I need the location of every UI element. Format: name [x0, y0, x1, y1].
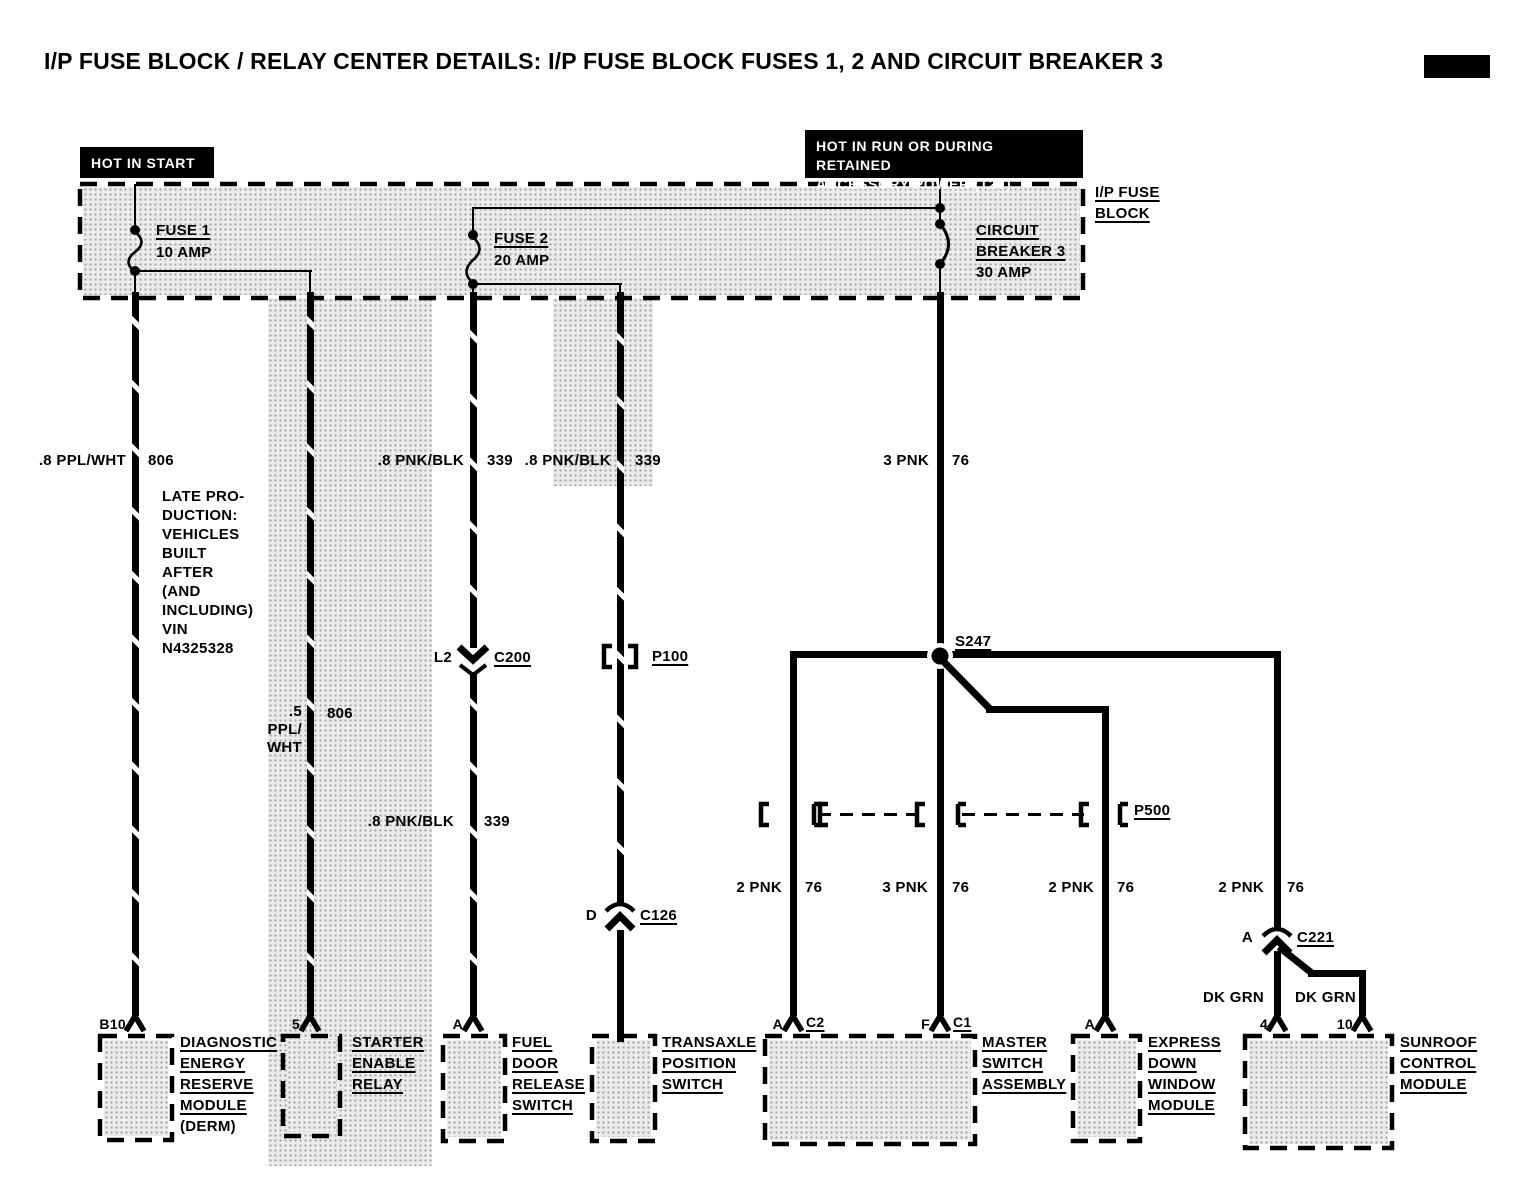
fuse2-symbol — [467, 230, 480, 289]
c126-pin-label: D — [586, 907, 597, 925]
breaker-rating: 30 AMP — [976, 264, 1031, 282]
transaxle-label: TRANSAXLE POSITION SWITCH — [662, 1032, 756, 1095]
fuse2-name: FUSE 2 — [494, 230, 548, 248]
wire4-circuit-label: 339 — [635, 452, 661, 470]
sunroof-wire2-color-label: DK GRN — [1295, 989, 1356, 1007]
hot-in-start-label: HOT IN START — [91, 155, 195, 171]
late-production-note: LATE PRO- DUCTION: VEHICLES BUILT AFTER … — [162, 487, 253, 658]
branch2-circuit-label: 76 — [952, 879, 969, 897]
p500-label: P500 — [1134, 802, 1170, 820]
hot-in-run-label-line2: ACCESSORY POWER (T2T) — [816, 175, 1072, 194]
pin-fork-terminals — [126, 1010, 1371, 1031]
sunroof-pin10-label: 10 — [1337, 1015, 1353, 1033]
breaker-name-line2: BREAKER 3 — [976, 243, 1065, 261]
transaxle-box — [592, 1036, 655, 1141]
p100-grommet-symbol — [604, 646, 636, 667]
master-conn-c2-label: C2 — [806, 1013, 825, 1031]
wire3b-color-label: .8 PNK/BLK — [368, 813, 454, 831]
starter-relay-label: STARTER ENABLE RELAY — [352, 1032, 424, 1095]
fuse2-rating: 20 AMP — [494, 252, 549, 270]
master-conn-c1-label: C1 — [953, 1013, 972, 1031]
master-switch-label: MASTER SWITCH ASSEMBLY — [982, 1032, 1066, 1095]
master-switch-box — [765, 1036, 975, 1144]
sunroof-pin4-label: 4 — [1260, 1015, 1268, 1033]
circuit-breaker3-symbol — [935, 203, 949, 269]
c200-connector-symbol — [459, 647, 487, 675]
wire5-circuit-label: 76 — [952, 452, 969, 470]
splice-diagonal-branches — [943, 661, 1313, 974]
fuse1-rating: 10 AMP — [156, 244, 211, 262]
p100-label: P100 — [652, 648, 688, 666]
master-pin-a-label: A — [773, 1015, 783, 1033]
branch4-color-label: 2 PNK — [1218, 879, 1264, 897]
fuel-door-pin-label: A — [453, 1015, 463, 1033]
fuse-block-outline — [80, 184, 1083, 298]
hot-in-start-banner: HOT IN START — [80, 147, 214, 178]
fuel-door-box — [443, 1036, 505, 1141]
branch4-circuit-label: 76 — [1287, 879, 1304, 897]
branch1-circuit-label: 76 — [805, 879, 822, 897]
wire4-color-label: .8 PNK/BLK — [525, 452, 611, 470]
p500-connector-symbols — [761, 804, 1128, 825]
c221-label: C221 — [1297, 929, 1334, 947]
branch3-color-label: 2 PNK — [1048, 879, 1094, 897]
c221-pin-label: A — [1242, 929, 1253, 947]
derm-box — [100, 1036, 172, 1140]
wiring-diagram-page: I/P FUSE BLOCK / RELAY CENTER DETAILS: I… — [0, 0, 1520, 1184]
express-pin-label: A — [1085, 1015, 1095, 1033]
starter-pin-label: 5 — [292, 1015, 300, 1033]
wire2-circuit-label: 806 — [327, 705, 353, 723]
wire1-color-label: .8 PPL/WHT — [39, 452, 126, 470]
fuse1-symbol — [129, 225, 142, 276]
branch3-circuit-label: 76 — [1117, 879, 1134, 897]
fuse-block-label-line2: BLOCK — [1095, 205, 1150, 223]
fuel-door-label: FUEL DOOR RELEASE SWITCH — [512, 1032, 585, 1116]
c200-label: C200 — [494, 649, 531, 667]
hot-in-run-label-line1: HOT IN RUN OR DURING RETAINED — [816, 137, 1072, 175]
derm-module-label: DIAGNOSTIC ENERGY RESERVE MODULE (DERM) — [180, 1032, 277, 1137]
express-window-label: EXPRESS DOWN WINDOW MODULE — [1148, 1032, 1221, 1116]
sunroof-label: SUNROOF CONTROL MODULE — [1400, 1032, 1477, 1095]
hot-in-run-banner: HOT IN RUN OR DURING RETAINED ACCESSORY … — [805, 130, 1083, 178]
branch1-color-label: 2 PNK — [736, 879, 782, 897]
master-pin-f-label: F — [921, 1015, 930, 1033]
wire3b-circuit-label: 339 — [484, 813, 510, 831]
sunroof-box — [1245, 1036, 1392, 1148]
derm-pin-label: B10 — [99, 1015, 126, 1033]
c126-connector-symbol — [606, 904, 634, 929]
s247-label: S247 — [955, 633, 991, 651]
fuse1-name: FUSE 1 — [156, 222, 210, 240]
wire3-circuit-label: 339 — [487, 452, 513, 470]
express-window-box — [1073, 1036, 1140, 1141]
c200-pin-label: L2 — [434, 649, 452, 667]
starter-relay-box — [283, 1036, 340, 1136]
breaker-name-line1: CIRCUIT — [976, 222, 1039, 240]
page-title: I/P FUSE BLOCK / RELAY CENTER DETAILS: I… — [44, 48, 1163, 75]
branch2-color-label: 3 PNK — [882, 879, 928, 897]
c126-label: C126 — [640, 907, 677, 925]
fuse-block-label-line1: I/P FUSE — [1095, 184, 1160, 202]
sunroof-wire1-color-label: DK GRN — [1203, 989, 1264, 1007]
wire2-color-label: .5 PPL/ WHT — [258, 703, 302, 757]
wire1-circuit-label: 806 — [148, 452, 174, 470]
wire3-color-label: .8 PNK/BLK — [378, 452, 464, 470]
wire5-color-label: 3 PNK — [883, 452, 929, 470]
